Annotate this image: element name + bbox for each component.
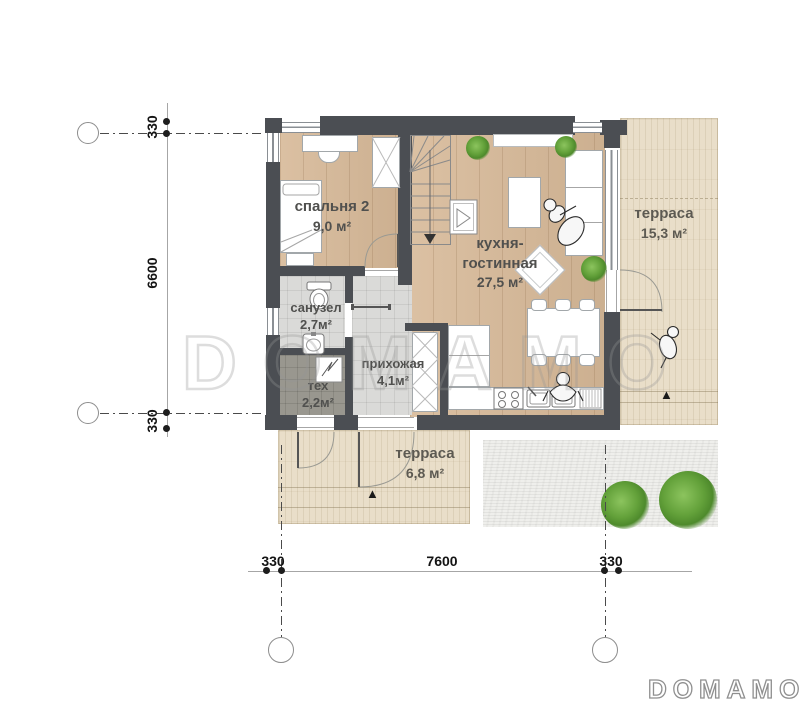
- wall-segment: [265, 415, 297, 430]
- nightstand: [286, 253, 314, 266]
- door-threshold: [358, 417, 414, 418]
- window: [605, 150, 618, 270]
- door-threshold: [616, 270, 617, 312]
- dimension-line-bottom: [248, 571, 692, 572]
- dining-chair: [555, 299, 571, 311]
- room-name: санузел: [285, 300, 347, 317]
- room-name: спальня 2: [277, 197, 387, 217]
- room-name: терраса: [618, 204, 710, 224]
- axis-line: [281, 445, 282, 637]
- dimension-label: 330: [144, 115, 160, 138]
- plant-icon: [466, 136, 490, 160]
- wall-segment: [320, 116, 575, 135]
- floor-plan-page: ▲ ▲ спальня 2 9,0 м² кухня-гостинная 27,…: [0, 0, 800, 710]
- wall-segment: [334, 415, 358, 430]
- dimension-label: 7600: [426, 553, 457, 569]
- coffee-table: [508, 177, 541, 228]
- dimension-label: 330: [144, 409, 160, 432]
- wall-segment: [266, 266, 365, 276]
- watermark-center: DOMAMO: [182, 320, 693, 407]
- room-label-terrace-right: терраса 15,3 м²: [618, 204, 710, 242]
- wall-segment: [265, 118, 282, 133]
- dimension-tick: [163, 409, 170, 416]
- brand-logo: DOMAMO: [648, 674, 800, 705]
- axis-bubble: [268, 637, 294, 663]
- axis-line: [100, 133, 264, 134]
- plant-icon: [659, 471, 717, 529]
- dining-chair: [579, 299, 595, 311]
- roof-overhang-line: [620, 198, 718, 199]
- room-name: терраса: [380, 444, 470, 464]
- plant-icon: [601, 481, 649, 529]
- plant-icon: [581, 256, 607, 282]
- dimension-label: 330: [261, 553, 284, 569]
- terrace-step-line: [278, 507, 470, 508]
- wall-segment: [604, 120, 620, 148]
- wall-segment: [345, 276, 353, 303]
- window: [282, 122, 320, 133]
- wall-segment: [417, 415, 620, 430]
- plant-icon: [555, 136, 577, 158]
- dimension-label: 330: [599, 553, 622, 569]
- wall-segment: [398, 135, 412, 285]
- dimension-tick: [163, 118, 170, 125]
- door-threshold: [358, 427, 414, 428]
- dimension-tick: [163, 425, 170, 432]
- window: [267, 133, 279, 162]
- desk: [302, 135, 358, 152]
- dining-chair: [531, 299, 547, 311]
- entry-marker-icon: ▲: [366, 487, 379, 500]
- window: [573, 122, 602, 133]
- axis-line: [605, 445, 606, 637]
- dimension-line-left: [167, 103, 168, 437]
- axis-bubble: [77, 122, 99, 144]
- door-threshold: [606, 270, 607, 312]
- axis-line: [100, 413, 264, 414]
- wardrobe: [372, 137, 400, 188]
- door-threshold: [297, 417, 334, 418]
- room-area: 9,0 м²: [277, 217, 387, 235]
- room-label-kitchen-living: кухня-гостинная 27,5 м²: [444, 234, 556, 291]
- door-threshold: [365, 270, 398, 271]
- dimension-tick: [163, 130, 170, 137]
- room-name: кухня-гостинная: [444, 234, 556, 273]
- room-label-terrace-bottom: терраса 6,8 м²: [380, 444, 470, 482]
- wall-segment: [266, 162, 280, 308]
- door-threshold: [297, 427, 334, 428]
- room-area: 15,3 м²: [618, 224, 710, 242]
- axis-bubble: [592, 637, 618, 663]
- dimension-label: 6600: [144, 257, 160, 288]
- sofa-cushion-line: [566, 222, 602, 223]
- room-label-bedroom2: спальня 2 9,0 м²: [277, 197, 387, 235]
- sofa-cushion-line: [566, 187, 602, 188]
- sofa: [565, 150, 603, 256]
- room-area: 27,5 м²: [444, 273, 556, 291]
- room-area: 6,8 м²: [380, 464, 470, 482]
- axis-bubble: [77, 402, 99, 424]
